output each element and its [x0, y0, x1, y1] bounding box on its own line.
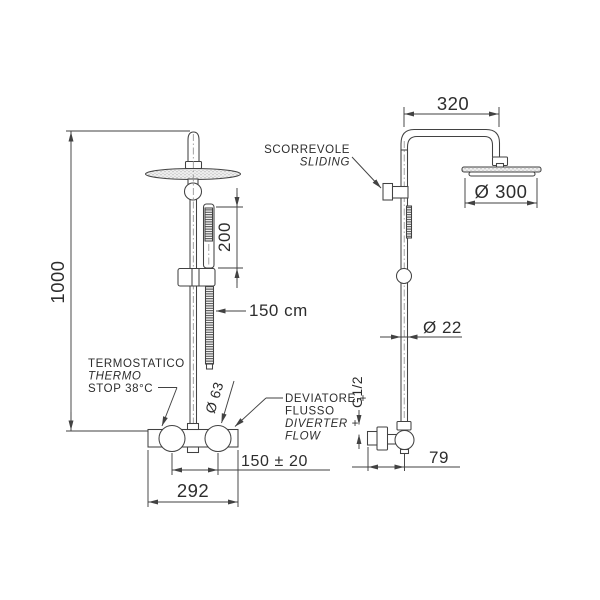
callout-knob-diameter: Ø 63 — [202, 380, 234, 423]
dim-head-diameter: Ø 300 — [465, 178, 537, 208]
hose-side — [407, 206, 412, 238]
overhead-shower-lip — [469, 172, 535, 176]
dim-handshower-length: 200 — [215, 188, 243, 288]
callout-thermostatic: TERMOSTATICO THERMO STOP 38°C — [88, 358, 185, 426]
thermostatic-label-it: TERMOSTATICO — [88, 358, 185, 370]
hand-shower-grip — [205, 208, 213, 241]
diverter-label-en-2: FLOW — [285, 431, 321, 443]
front-view: 1000 200 150 cm TERMOSTATICO THERMO STOP… — [47, 131, 367, 507]
dim-label-22: Ø 22 — [423, 318, 462, 337]
left-knob — [159, 426, 185, 452]
thermostatic-label-en: THERMO — [88, 371, 141, 383]
dim-label-200: 200 — [215, 222, 234, 252]
overhead-shower-side — [462, 167, 541, 172]
leader-line — [352, 157, 381, 188]
shower-column-drawing: 1000 200 150 cm TERMOSTATICO THERMO STOP… — [0, 0, 600, 600]
g12-inlet — [368, 432, 378, 446]
valve-nut-side — [397, 422, 411, 431]
knob-diameter-label: Ø 63 — [202, 380, 227, 415]
thread-label: G1/2 — [349, 376, 365, 408]
dim-body-width: 292 — [148, 450, 238, 507]
dim-thread-size: G1/2 — [349, 376, 365, 449]
leader-line — [235, 398, 266, 427]
technical-drawing-sheet: 1000 200 150 cm TERMOSTATICO THERMO STOP… — [0, 0, 600, 600]
callout-diverter: DEVIATORE + FLUSSO DIVERTER + FLOW — [235, 393, 367, 443]
dim-label-1000: 1000 — [47, 260, 68, 303]
valve-nub — [401, 450, 409, 454]
dim-label-300: Ø 300 — [475, 181, 528, 202]
dim-pipe-diameter: Ø 22 — [380, 318, 462, 337]
callout-sliding: SCORREVOLE SLIDING — [264, 144, 381, 188]
dim-inlet-spacing: 150 ± 20 — [172, 453, 330, 475]
shower-hose — [206, 286, 214, 364]
right-knob — [205, 426, 231, 452]
valve-outlet — [188, 447, 199, 453]
dim-label-292: 292 — [177, 480, 209, 501]
valve-body-side — [395, 431, 414, 450]
dim-label-320: 320 — [437, 93, 469, 114]
dim-label-79: 79 — [429, 448, 449, 467]
diverter-label-en-1: DIVERTER + — [285, 418, 359, 430]
sliding-bracket-clamp — [393, 187, 409, 199]
dim-label-inlet-spacing: 150 ± 20 — [241, 453, 308, 470]
pole-base-flare — [188, 424, 199, 430]
pivot-ball-side — [397, 269, 412, 284]
dim-arm-reach: 320 — [404, 93, 499, 127]
hose-length-label: 150 cm — [249, 301, 308, 320]
sliding-label-it: SCORREVOLE — [264, 144, 350, 156]
leader-line — [162, 388, 177, 427]
sliding-label-en: SLIDING — [300, 157, 350, 169]
wall-plate — [377, 427, 388, 450]
sliding-bracket — [383, 184, 393, 201]
callout-hose-length: 150 cm — [216, 301, 308, 320]
shower-arm-inner — [408, 137, 493, 161]
side-shower-column — [368, 130, 542, 454]
shower-arm-outer — [401, 130, 500, 161]
thermostatic-stop-label: STOP 38°C — [88, 383, 153, 395]
slider-holder — [178, 269, 215, 287]
front-shower-column — [146, 132, 241, 453]
diverter-label-it-2: FLUSSO — [285, 406, 335, 418]
hose-end — [207, 364, 213, 369]
